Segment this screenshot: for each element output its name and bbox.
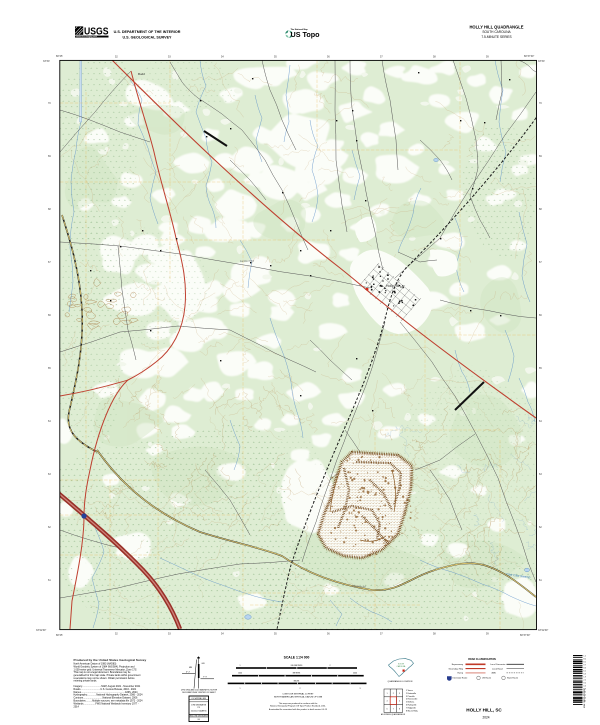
svg-text:ADJOINING QUADRANGLES: ADJOINING QUADRANGLES (381, 713, 406, 716)
svg-text:Local Road: Local Road (492, 668, 503, 670)
svg-text:SOUTH CAROLINA: SOUTH CAROLINA (482, 30, 511, 34)
svg-text:MN: MN (189, 667, 193, 669)
svg-text:CONTOUR INTERVAL 10 FEET: CONTOUR INTERVAL 10 FEET (282, 692, 314, 695)
svg-text:5 Bethera: 5 Bethera (406, 701, 415, 704)
svg-text:Rudd: Rudd (138, 72, 145, 76)
svg-text:2: 2 (300, 688, 301, 690)
svg-text:NSN.7643014674238: NSN.7643014674238 (584, 688, 586, 708)
svg-text:8.1: 8.1 (584, 662, 586, 664)
svg-text:A metadata file associated wit: A metadata file associated with this pro… (269, 708, 328, 711)
svg-text:33°30': 33°30' (538, 60, 545, 63)
svg-text:science for a changing world: science for a changing world (76, 36, 97, 38)
svg-text:1.9: 1.9 (584, 677, 586, 679)
svg-text:Wetlands..................FWS: Wetlands..................FWS National W… (74, 702, 139, 705)
svg-text:National Geospatial Program US: National Geospatial Program US Topo Prod… (270, 704, 326, 707)
svg-text:Secondary Hwy: Secondary Hwy (448, 667, 464, 670)
svg-text:entering private lands.: entering private lands. (74, 680, 98, 683)
svg-text:ROAD CLASSIFICATION: ROAD CLASSIFICATION (468, 658, 496, 661)
svg-text:2024: 2024 (482, 715, 489, 719)
svg-text:3 Pineville: 3 Pineville (406, 696, 415, 698)
svg-text:U.S. DEPARTMENT OF THE INTERIO: U.S. DEPARTMENT OF THE INTERIOR (114, 30, 181, 34)
svg-text:1.2: 1.2 (584, 656, 586, 658)
svg-text:1: 1 (240, 688, 241, 690)
svg-text:9.7: 9.7 (584, 665, 586, 667)
svg-text:HOLLY HILL, SC: HOLLY HILL, SC (466, 708, 502, 713)
svg-text:CAROLINA: CAROLINA (397, 665, 407, 668)
svg-text:17S: 17S (197, 707, 200, 709)
svg-text:8.3: 8.3 (584, 668, 586, 670)
svg-text:33°22'30": 33°22'30" (36, 629, 46, 632)
svg-text:7.5-MINUTE SERIES: 7.5-MINUTE SERIES (481, 35, 511, 39)
svg-text:1000: 1000 (238, 673, 242, 675)
svg-text:80°37'30": 80°37'30" (520, 634, 530, 637)
svg-text:80°45': 80°45' (56, 634, 63, 637)
svg-text:0.4: 0.4 (584, 686, 586, 688)
svg-text:9.0: 9.0 (584, 683, 586, 685)
svg-text:HOLLY HILL QUADRANGLE: HOLLY HILL QUADRANGLE (469, 24, 523, 29)
svg-text:7° 9': 7° 9' (203, 677, 208, 679)
svg-text:4WD: 4WD (491, 673, 496, 675)
svg-text:Old State Rd: Old State Rd (352, 585, 366, 588)
svg-text:This map was produced to confo: This map was produced to conform with th… (279, 702, 319, 705)
svg-text:KILOMETERS: KILOMETERS (291, 665, 303, 667)
svg-text:0° 2': 0° 2' (186, 672, 191, 674)
svg-text:6.1: 6.1 (584, 671, 586, 673)
svg-text:1: 1 (240, 665, 241, 667)
svg-text:2 Eutawville: 2 Eutawville (406, 692, 416, 695)
svg-text:33°30': 33°30' (43, 60, 50, 63)
svg-text:4 Reevesville: 4 Reevesville (406, 699, 417, 701)
svg-text:Produced by the United States: Produced by the United States Geological… (74, 658, 147, 662)
svg-text:Holly Hill: Holly Hill (386, 284, 399, 288)
svg-text:2000: 2000 (353, 673, 357, 675)
svg-text:Interstate Route: Interstate Route (453, 677, 469, 680)
svg-text:MILES: MILES (294, 680, 300, 682)
svg-text:2014: 2014 (74, 705, 80, 708)
svg-text:U.S. GEOLOGICAL SURVEY: U.S. GEOLOGICAL SURVEY (122, 36, 172, 40)
svg-text:2: 2 (330, 665, 331, 667)
svg-text:33°22'30": 33°22'30" (538, 629, 548, 632)
svg-text:8.0: 8.0 (584, 659, 586, 661)
svg-text:8 Mount Holly: 8 Mount Holly (406, 709, 418, 712)
svg-text:2.2: 2.2 (584, 680, 586, 682)
svg-text:6.3: 6.3 (584, 674, 586, 676)
svg-text:SCALE 1:24 000: SCALE 1:24 000 (284, 655, 310, 659)
svg-text:80°45': 80°45' (56, 55, 63, 58)
svg-text:80°37'30": 80°37'30" (524, 55, 534, 58)
svg-text:1 Vance: 1 Vance (406, 690, 413, 692)
svg-text:Ramp: Ramp (457, 673, 463, 675)
svg-text:6 Harleyville: 6 Harleyville (406, 704, 416, 707)
svg-text:Gardner Blvd: Gardner Blvd (240, 259, 255, 263)
svg-text:NORTH AMERICAN VERTICAL DATUM: NORTH AMERICAN VERTICAL DATUM OF 1988 (274, 696, 323, 699)
svg-text:UB: UB (198, 719, 200, 721)
svg-text:Local Connector: Local Connector (490, 663, 505, 666)
svg-text:DECLINATION AT CENTER OF SHEET: DECLINATION AT CENTER OF SHEET (182, 691, 216, 694)
svg-text:QUADRANGLE LOCATION: QUADRANGLE LOCATION (388, 680, 413, 683)
svg-text:US Topo: US Topo (291, 30, 321, 39)
svg-text:Expressway: Expressway (452, 663, 464, 666)
svg-text:7 Ridgeville: 7 Ridgeville (406, 707, 416, 709)
svg-text:METERS: METERS (293, 673, 301, 675)
svg-text:State Route: State Route (507, 677, 519, 680)
svg-text:US Route: US Route (482, 677, 492, 680)
svg-text:3: 3 (360, 688, 361, 690)
